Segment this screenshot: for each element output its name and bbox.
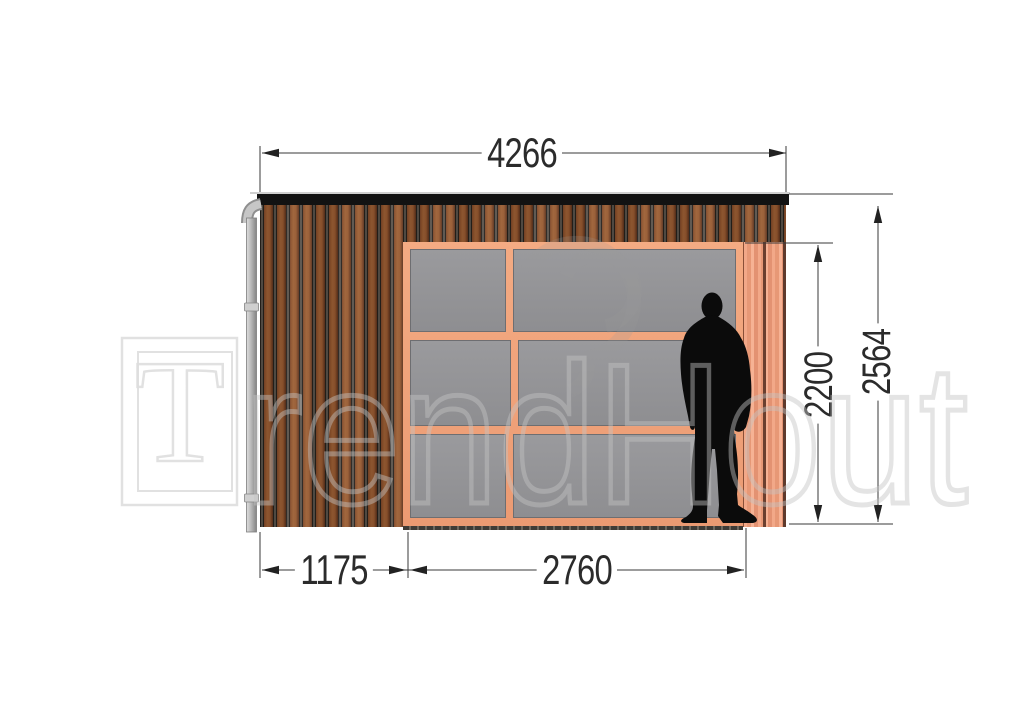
dimension-label-overall-height: 2564 [857, 323, 897, 400]
dimension-label-glazed-width: 2760 [537, 549, 618, 591]
technical-drawing-canvas: 4266 2564 2200 1175 2760 T rendHout [0, 0, 1024, 704]
dimension-arrowheads [262, 149, 882, 574]
dimension-label-overall-width: 4266 [482, 132, 563, 174]
dimension-label-opening-height: 2200 [799, 346, 839, 423]
dimension-label-cladding-width: 1175 [295, 549, 373, 591]
